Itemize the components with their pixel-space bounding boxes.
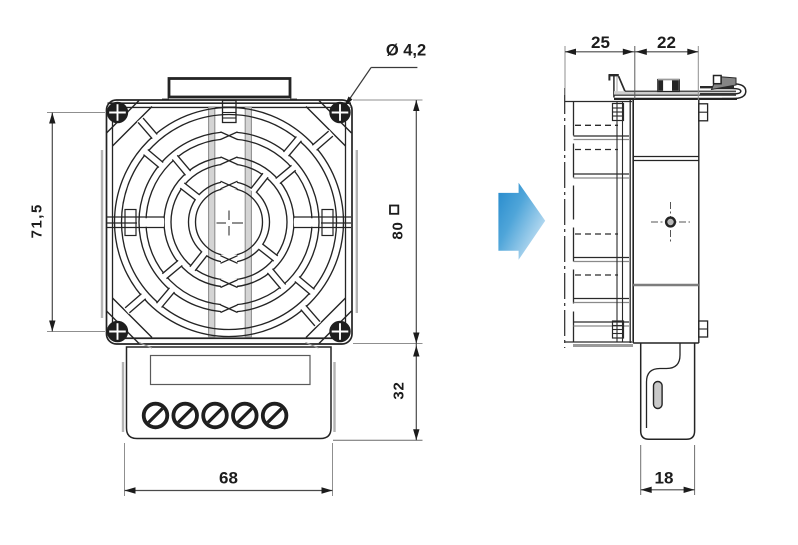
- svg-text:32: 32: [391, 381, 408, 399]
- svg-text:18: 18: [655, 469, 674, 488]
- svg-text:71,5: 71,5: [29, 203, 46, 238]
- svg-text:22: 22: [657, 33, 676, 52]
- svg-text:80: 80: [390, 221, 407, 239]
- svg-text:68: 68: [219, 469, 238, 488]
- svg-text:Ø 4,2: Ø 4,2: [386, 42, 426, 60]
- svg-text:25: 25: [591, 33, 610, 52]
